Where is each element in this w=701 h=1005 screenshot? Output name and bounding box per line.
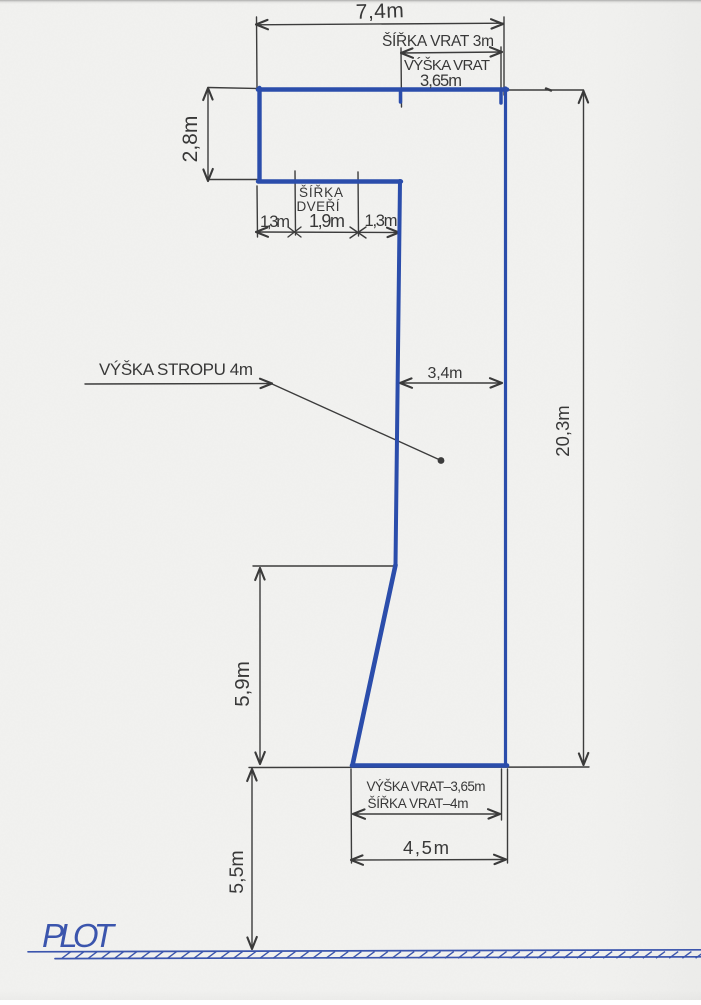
svg-text:1,3m: 1,3m xyxy=(260,213,290,231)
svg-text:7,4m: 7,4m xyxy=(355,0,404,24)
svg-text:PLOT: PLOT xyxy=(42,917,117,954)
svg-text:4,5m: 4,5m xyxy=(403,837,449,858)
svg-text:VÝŠKA VRAT–3,65m: VÝŠKA VRAT–3,65m xyxy=(367,779,486,794)
svg-text:5,5m: 5,5m xyxy=(226,850,248,893)
svg-text:ŠÍŘKA: ŠÍŘKA xyxy=(299,185,343,200)
svg-text:2,8m: 2,8m xyxy=(179,116,202,163)
svg-text:3,4m: 3,4m xyxy=(428,365,463,382)
svg-text:1,9m: 1,9m xyxy=(309,211,345,231)
svg-text:ŠÍŘKA VRAT 3m: ŠÍŘKA VRAT 3m xyxy=(382,33,494,50)
svg-text:20,3m: 20,3m xyxy=(552,405,573,456)
svg-text:VÝŠKA STROPU 4m: VÝŠKA STROPU 4m xyxy=(99,360,253,379)
svg-text:5,9m: 5,9m xyxy=(231,661,254,707)
svg-text:1,3m: 1,3m xyxy=(365,212,398,230)
svg-text:ŠÍŘKA VRAT–4m: ŠÍŘKA VRAT–4m xyxy=(368,796,469,811)
svg-text:3,65m: 3,65m xyxy=(420,72,462,90)
